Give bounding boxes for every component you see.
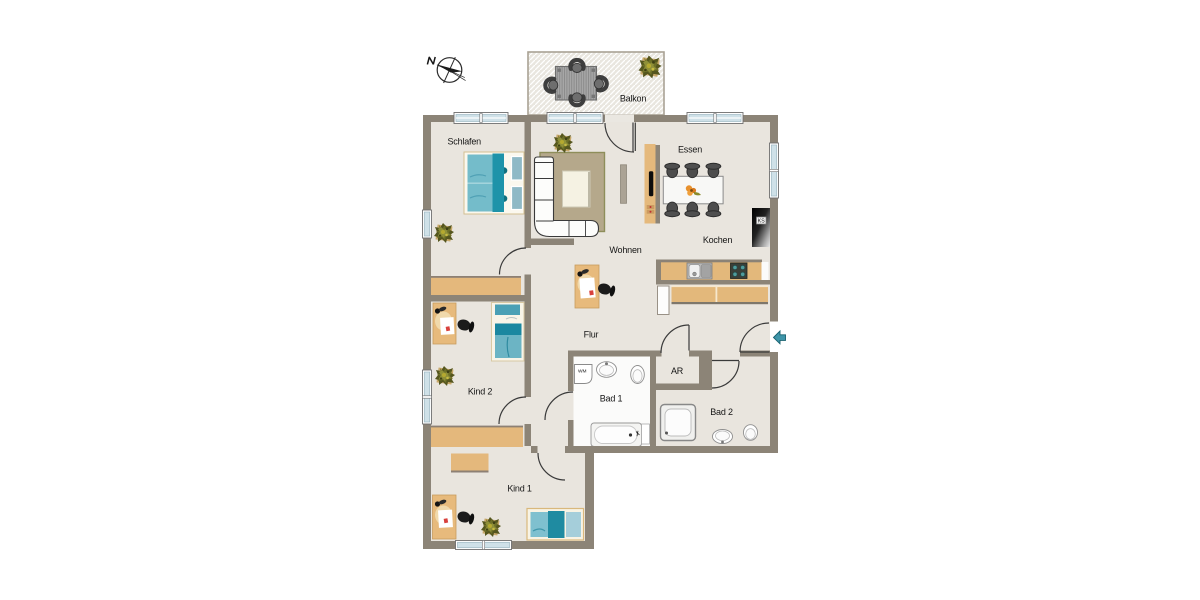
- svg-text:WM: WM: [578, 369, 587, 375]
- svg-text:Kochen: Kochen: [703, 235, 733, 245]
- svg-text:Bad 2: Bad 2: [710, 407, 733, 417]
- svg-text:KS: KS: [758, 219, 765, 225]
- svg-text:Balkon: Balkon: [620, 94, 647, 104]
- svg-text:Essen: Essen: [678, 145, 702, 155]
- svg-text:Kind 2: Kind 2: [468, 387, 493, 397]
- svg-text:Flur: Flur: [584, 330, 599, 340]
- svg-text:Wohnen: Wohnen: [609, 245, 641, 255]
- svg-text:AR: AR: [671, 366, 684, 376]
- svg-text:Kind 1: Kind 1: [507, 484, 532, 494]
- svg-text:Bad 1: Bad 1: [600, 394, 623, 404]
- svg-text:Schlafen: Schlafen: [448, 137, 482, 147]
